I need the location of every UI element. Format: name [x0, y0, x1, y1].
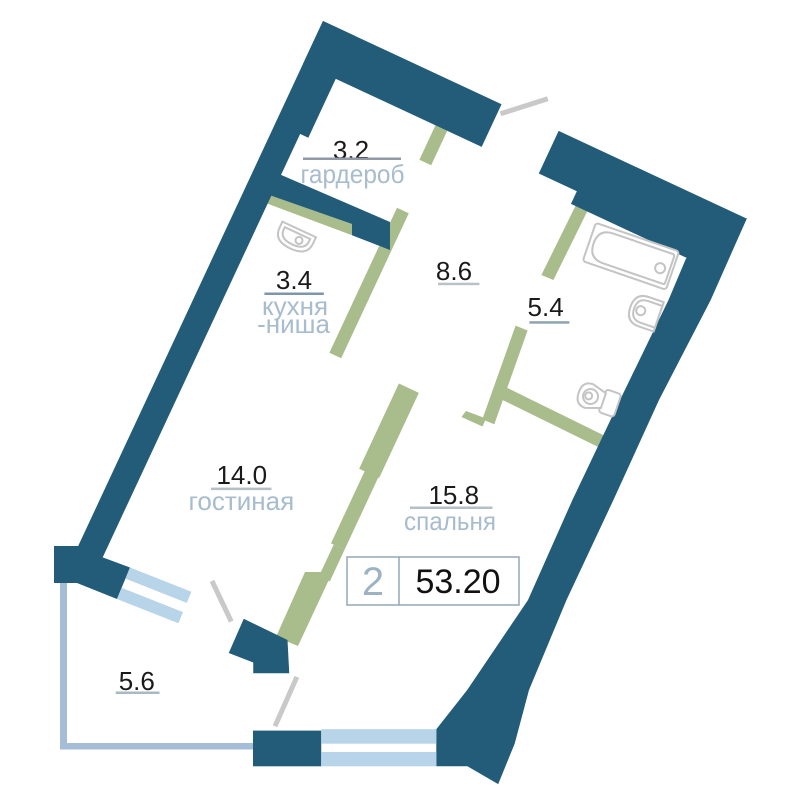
svg-text:5.4: 5.4: [528, 292, 564, 322]
svg-text:-ниша: -ниша: [257, 309, 330, 339]
svg-text:гостиная: гостиная: [188, 486, 294, 516]
svg-text:53.20: 53.20: [415, 563, 500, 601]
svg-text:8.6: 8.6: [436, 256, 472, 286]
svg-text:спальня: спальня: [404, 506, 496, 536]
svg-text:гардероб: гардероб: [301, 159, 405, 189]
svg-text:2: 2: [362, 560, 384, 604]
